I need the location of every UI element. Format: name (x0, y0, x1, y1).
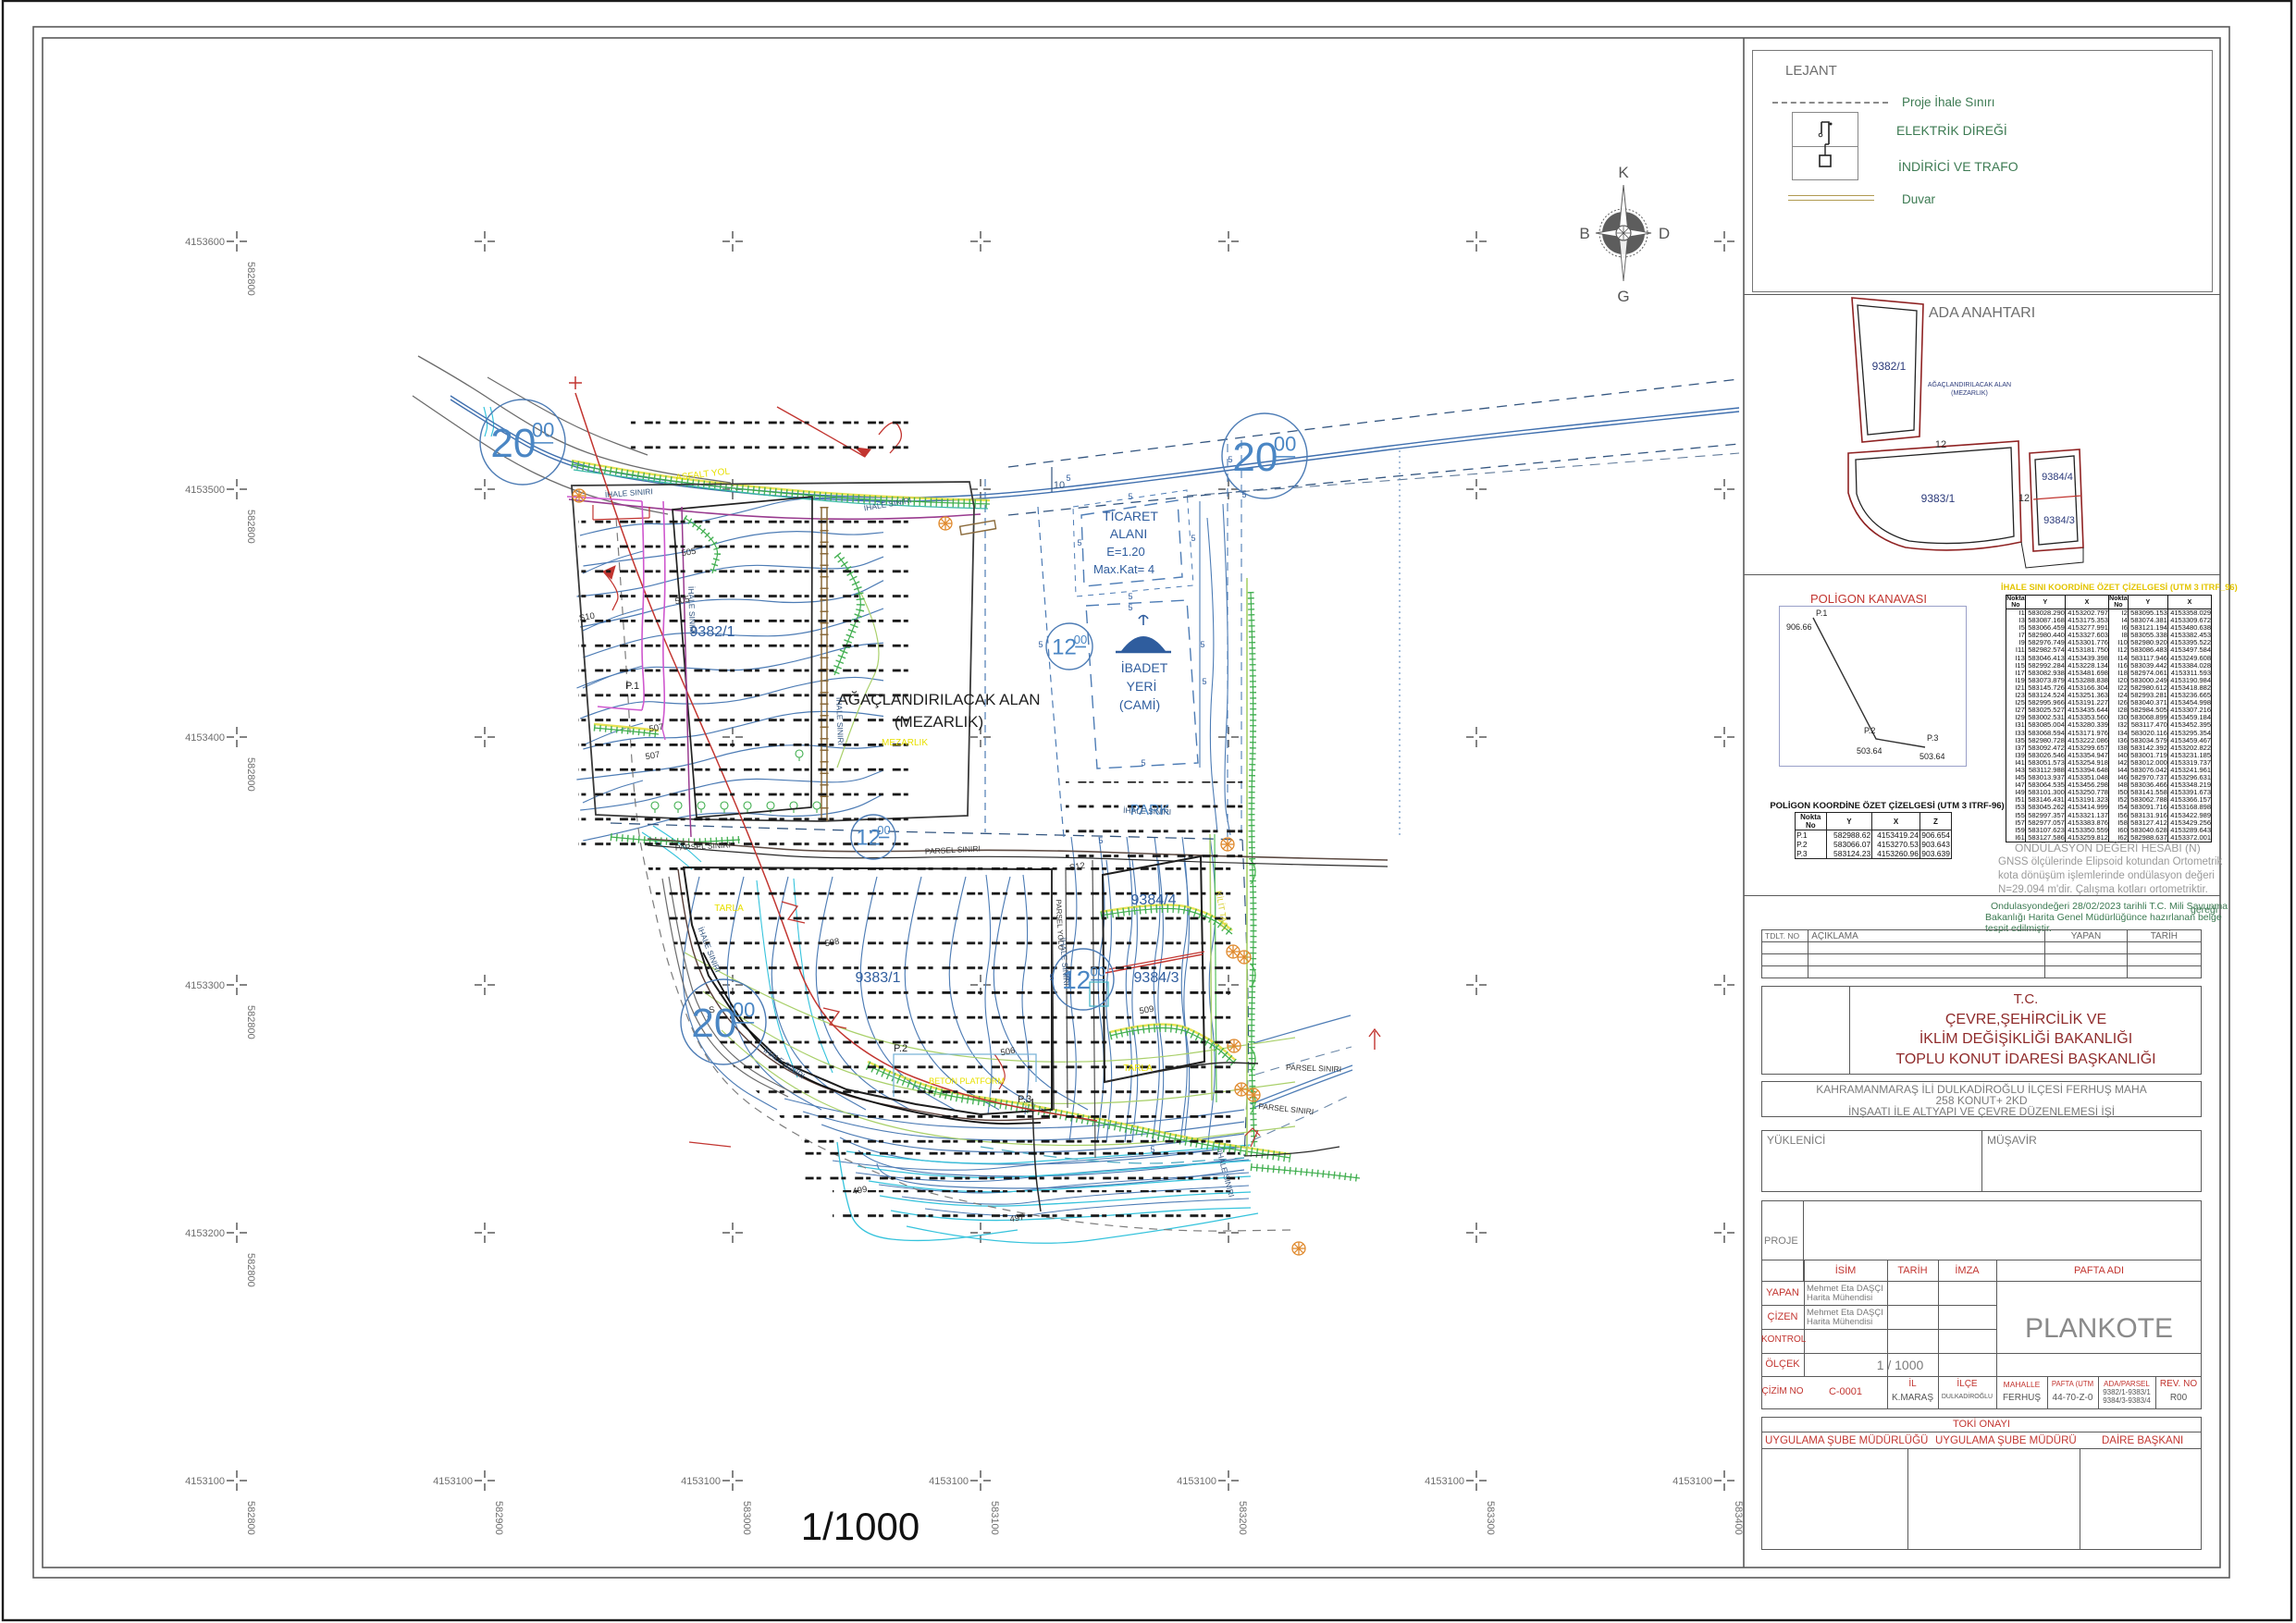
svg-text:P.2: P.2 (1864, 726, 1875, 735)
svg-text:9384/4: 9384/4 (2042, 472, 2073, 483)
svg-text:P.3: P.3 (1927, 733, 1938, 743)
svg-text:P.1: P.1 (1816, 609, 1827, 618)
svg-text:906.66: 906.66 (1786, 622, 1812, 632)
svg-text:12: 12 (1935, 439, 1946, 450)
svg-text:503.64: 503.64 (1920, 752, 1945, 761)
svg-text:503.64: 503.64 (1857, 746, 1882, 756)
svg-text:(MEZARLIK): (MEZARLIK) (1951, 390, 1988, 397)
svg-text:9384/3: 9384/3 (2043, 515, 2075, 526)
svg-text:9383/1: 9383/1 (1921, 492, 1956, 505)
svg-text:AĞAÇLANDIRILACAK ALAN: AĞAÇLANDIRILACAK ALAN (1928, 380, 2011, 388)
svg-text:12: 12 (2018, 493, 2030, 504)
svg-text:9382/1: 9382/1 (1872, 360, 1907, 373)
